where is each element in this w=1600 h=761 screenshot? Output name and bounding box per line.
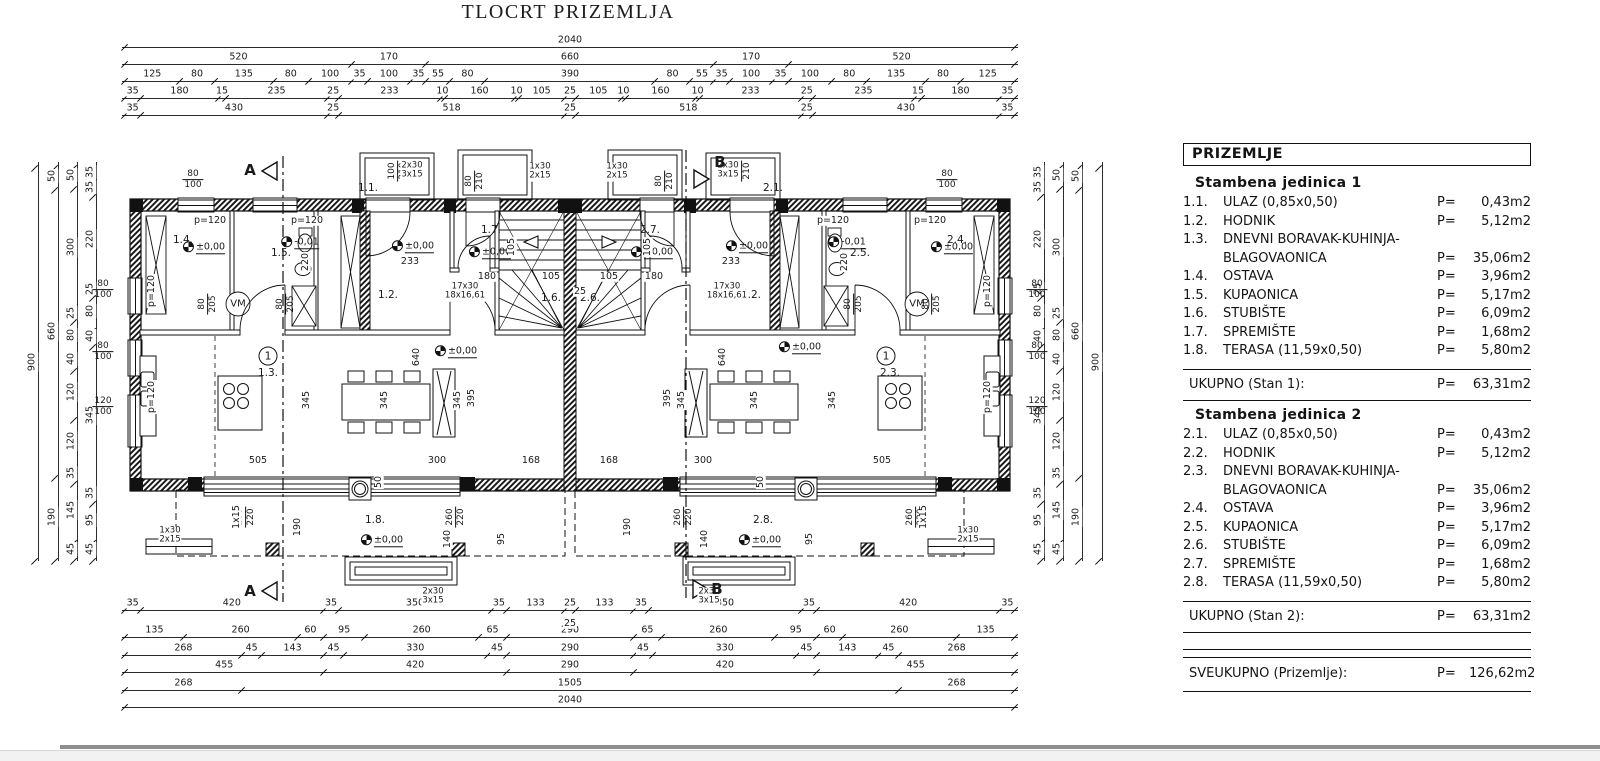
p-label: P= [1437,213,1469,232]
plan-dimension: 345 [828,390,838,410]
section-letter: B [714,154,725,171]
plan-dimension: 345 [750,390,760,410]
p-label: P= [1437,608,1469,627]
dimension-line [122,637,1018,638]
plan-dimension: p=120 [147,380,157,414]
plan-dimension: 1x15 [232,504,242,530]
floor-plan-area: 2040520170660170520125801358010035100355… [0,0,1170,760]
plan-dimension: 233 [400,257,420,267]
room-number: 2.2. [1183,445,1223,464]
elevation-icon [779,341,790,352]
legend-separator [1183,649,1531,650]
stair-note: 2x30 3x15 [400,162,423,181]
dimension-value: 518 [442,104,462,114]
legend-header-text: PRIZEMLJE [1192,146,1283,162]
dimension-value: 518 [678,104,698,114]
room-name: STUBIŠTE [1223,537,1437,556]
dimension-value: 35 [802,599,816,609]
dimension-value: 455 [214,661,234,671]
plan-dimension: 1x15 [919,504,929,530]
p-label: P= [1437,445,1469,464]
dimension-line [122,707,1018,708]
area-value [1469,231,1531,250]
elevation-value: ±0,00 [448,345,477,358]
dimension-value: 80 [284,70,298,80]
dimension-value: 260 [231,626,251,636]
dimension-value: 900 [1090,351,1102,371]
dimension-value: 390 [560,70,580,80]
room-number: 2.1. [1183,426,1223,445]
p-label: P= [1437,556,1469,575]
dimension-value: 95 [337,626,351,636]
dimension-value: 100 [379,70,399,80]
dimension-value: 50 [1051,168,1063,182]
area-value: 5,80m2 [1469,342,1531,361]
opening-size-label: 260220 [445,506,467,527]
dimension-value: 35 [126,87,140,97]
plan-dimension: 640 [718,347,728,367]
legend-body: Stambena jedinica 11.1.ULAZ (0,85x0,50)P… [1183,175,1531,692]
dimension-value: 55 [431,70,445,80]
room-number: 2.6. [1183,537,1223,556]
dimension-value: 45 [636,644,650,654]
opening-size-label: 80205 [843,293,865,314]
legend-unit-title: Stambena jedinica 1 [1183,175,1531,191]
room-number: 1.6. [1183,305,1223,324]
dimension-value: 35 [1000,87,1014,97]
room-name: KUPAONICA [1223,287,1437,306]
elevation-mark: ±0,00 [469,246,511,257]
dimension-value: 125 [142,70,162,80]
elevation-icon [828,236,839,247]
opening-size-label: 80210 [654,170,676,191]
legend-row: 2.5.KUPAONICAP=5,17m2 [1183,519,1531,538]
dimension-value: 35 [773,70,787,80]
dimension-value: 25 [326,104,340,114]
dimension-value: 300 [1051,237,1063,257]
legend-row: 2.6.STUBIŠTEP=6,09m2 [1183,537,1531,556]
p-label: P= [1437,250,1469,269]
dimension-value: 260 [889,626,909,636]
dimension-line [38,162,39,561]
p-label: P= [1437,305,1469,324]
page-bottom-rule [60,745,1600,749]
elevation-value: ±0,00 [752,534,781,547]
dimension-line [122,690,1018,691]
legend-total: UKUPNO (Stan 2):P=63,31m2 [1183,601,1531,634]
room-name: TERASA (11,59x0,50) [1223,574,1437,593]
plan-dimension: p=120 [913,216,947,226]
room-number: 2.3. [1183,463,1223,482]
p-label: P= [1437,537,1469,556]
dimension-value: 45 [65,542,77,556]
dimension-value: 80 [65,328,77,342]
elevation-mark: ±0,00 [361,534,403,545]
dimension-value: 233 [740,87,760,97]
dimension-value: 190 [1070,506,1082,526]
dimension-value: 60 [303,626,317,636]
dimension-value: 60 [823,626,837,636]
room-number: 2.3. [880,368,900,380]
dimension-value: 35 [634,599,648,609]
dimension-value: 80 [936,70,950,80]
plan-dimension: 25 [573,287,587,297]
plan-dimension: 505 [872,456,892,466]
section-letter: A [244,162,256,179]
legend-panel: PRIZEMLJE Stambena jedinica 11.1.ULAZ (0… [1183,143,1531,692]
elevation-value: ±0,00 [374,534,403,547]
room-name: HODNIK [1223,213,1437,232]
p-label: P= [1437,482,1469,501]
stair-note: 1x30 2x15 [605,163,628,182]
elevation-mark: ±0,00 [392,240,434,251]
dimension-line [1063,162,1064,561]
legend-row: 1.8.TERASA (11,59x0,50)P=5,80m2 [1183,342,1531,361]
dimension-value: 145 [65,500,77,520]
elevation-icon [281,236,292,247]
plan-dimension: 190 [623,517,633,537]
window-bottom-strip [0,750,1600,761]
legend-row: 2.3.DNEVNI BORAVAK-KUHINJA- [1183,463,1531,482]
dimension-value: 35 [324,599,338,609]
dimension-value: 35 [1032,486,1044,500]
legend-row: 1.1.ULAZ (0,85x0,50)P=0,43m2 [1183,194,1531,213]
area-value: 6,09m2 [1469,305,1531,324]
plan-dimension: p=120 [193,216,227,226]
opening-size-label: 80100 [936,169,957,191]
opening-size-label: 80100 [92,341,113,363]
dimension-line [77,162,78,561]
opening-size-label: 80205 [197,293,219,314]
area-value: 1,68m2 [1469,556,1531,575]
plan-dimension: 50 [374,475,384,489]
dimension-value: 80 [1032,304,1044,318]
dimension-value: 268 [173,679,193,689]
area-value: 0,43m2 [1469,426,1531,445]
dimension-line [122,610,1018,611]
dimension-value: 25 [563,104,577,114]
dimension-value: 45 [84,542,96,556]
dimension-value: 95 [84,513,96,527]
elevation-icon [931,241,942,252]
plan-dimension: 180 [644,272,664,282]
room-name: ULAZ (0,85x0,50) [1223,426,1437,445]
stair-note: 1x30 2x15 [158,527,181,546]
dimension-value: 160 [650,87,670,97]
dimension-value: 25 [563,87,577,97]
legend-row: 2.8.TERASA (11,59x0,50)P=5,80m2 [1183,574,1531,593]
dimension-value: 120 [1051,382,1063,402]
elevation-mark: -0,01 [828,236,866,247]
room-name: SPREMIŠTE [1223,556,1437,575]
dimension-value: 330 [715,644,735,654]
area-value: 1,68m2 [1469,324,1531,343]
dimension-value: 300 [65,237,77,257]
dimension-value: 145 [1051,500,1063,520]
room-number: 2.7. [1183,556,1223,575]
stair-note: 1x30 2x15 [956,527,979,546]
room-number: 1.1. [1183,194,1223,213]
room-number: 2.1. [763,183,783,195]
elevation-value: ±0,00 [739,240,768,253]
p-label: P= [1437,665,1469,684]
plan-dimension: 105 [599,272,619,282]
room-name: DNEVNI BORAVAK-KUHINJA- [1223,231,1437,250]
dimension-value: 120 [65,382,77,402]
room-name: BLAGOVAONICA [1223,250,1437,269]
dimension-value: 133 [594,599,614,609]
p-label: P= [1437,376,1469,395]
room-number: 1.3. [258,368,278,380]
legend-row: 1.5.KUPAONICAP=5,17m2 [1183,287,1531,306]
dimension-value: 65 [640,626,654,636]
dimension-value: 80 [1051,328,1063,342]
dimension-value: 135 [975,626,995,636]
area-value: 3,96m2 [1469,500,1531,519]
elevation-icon [726,240,737,251]
room-name: SVEUKUPNO (Prizemlje): [1189,665,1437,684]
room-name: ULAZ (0,85x0,50) [1223,194,1437,213]
room-number: 1.5. [271,248,291,260]
dimension-value: 25 [326,87,340,97]
legend-row: 2.1.ULAZ (0,85x0,50)P=0,43m2 [1183,426,1531,445]
dimension-value: 220 [84,229,96,249]
stair-note: 2x30 3x15 [421,588,444,607]
legend-grand-total: SVEUKUPNO (Prizemlje):P=126,62m2 [1183,657,1531,692]
dimension-value: 25 [800,104,814,114]
plan-dimension: 220 [840,252,850,272]
p-label [1437,463,1469,482]
plan-dimension: 395 [663,388,673,408]
dimension-value: 120 [65,431,77,451]
elevation-icon [435,345,446,356]
p-label: P= [1437,426,1469,445]
plan-dimension: 95 [805,532,815,546]
p-label: P= [1437,268,1469,287]
elevation-value: -0,01 [841,236,866,249]
dimension-value: 80 [842,70,856,80]
area-value: 6,09m2 [1469,537,1531,556]
room-name: HODNIK [1223,445,1437,464]
plan-dimension: p=120 [983,380,993,414]
opening-size-label: 120100 [1026,396,1047,418]
room-name: DNEVNI BORAVAK-KUHINJA- [1223,463,1437,482]
plan-dimension: 95 [497,532,507,546]
opening-size-label: 80100 [1026,279,1047,301]
room-number: 2.8. [753,515,773,527]
plan-dimension: 105 [507,237,517,257]
plan-dimension: VM [230,299,245,310]
elevation-value: ±0,00 [405,240,434,253]
dimension-line [58,162,59,561]
dimension-value: 25 [563,599,577,609]
dimension-value: 35 [1051,466,1063,480]
room-number: 1.2. [378,290,398,302]
plan-dimension: p=120 [290,216,324,226]
dimension-value: 133 [525,599,545,609]
legend-row: UKUPNO (Stan 1):P=63,31m2 [1183,376,1531,395]
plan-dimension: 345 [453,390,463,410]
dimension-value: 105 [532,87,552,97]
elevation-mark: ±0,00 [931,241,973,252]
room-number: 1.2. [1183,213,1223,232]
dimension-value: 65 [486,626,500,636]
dimension-value: 268 [173,644,193,654]
stair-note: 1x30 2x15 [528,163,551,182]
room-number: 1.7. [1183,324,1223,343]
opening-size-label: 80100 [1026,341,1047,363]
dimension-line [122,115,1018,116]
dimension-line [122,47,1018,48]
dimension-value: 100 [741,70,761,80]
dimension-value: 660 [1070,321,1082,341]
elevation-icon [469,246,480,257]
dimension-value: 45 [881,644,895,654]
elevation-mark: -0,01 [281,236,319,247]
legend-row: 1.4.OSTAVAP=3,96m2 [1183,268,1531,287]
dimension-value: 268 [946,679,966,689]
plan-dimension: 190 [293,517,303,537]
p-label: P= [1437,574,1469,593]
room-number: 2.7. [640,225,660,237]
room-number: 1.8. [365,515,385,527]
dimension-value: 35 [84,165,96,179]
dimension-value: 135 [886,70,906,80]
dimension-line [122,655,1018,656]
dimension-value: 660 [46,321,58,341]
plan-dimension: 25 [563,619,577,629]
dimension-value: 45 [245,644,259,654]
legend-row: 2.7.SPREMIŠTEP=1,68m2 [1183,556,1531,575]
area-value: 5,12m2 [1469,213,1531,232]
dimension-value: 2040 [557,36,583,46]
dimension-value: 55 [695,70,709,80]
p-label: P= [1437,519,1469,538]
dimension-value: 1505 [557,679,583,689]
dimension-value: 233 [379,87,399,97]
dimension-value: 35 [715,70,729,80]
legend-row: 1.2.HODNIKP=5,12m2 [1183,213,1531,232]
dimension-value: 80 [460,70,474,80]
dimension-value: 95 [789,626,803,636]
dimension-value: 35 [1032,180,1044,194]
dimension-value: 95 [1032,513,1044,527]
party-wall [564,199,576,491]
plan-dimension: 168 [599,456,619,466]
legend-row: BLAGOVAONICAP=35,06m2 [1183,250,1531,269]
plan-dimension: 345 [380,390,390,410]
dimension-line [1082,162,1083,561]
legend-total: UKUPNO (Stan 1):P=63,31m2 [1183,369,1531,402]
dimension-value: 235 [266,87,286,97]
area-value: 5,80m2 [1469,574,1531,593]
plan-dimension: 105 [541,272,561,282]
dimension-value: 455 [906,661,926,671]
dimension-value: 45 [799,644,813,654]
room-number: 1.8. [1183,342,1223,361]
room-number: 2.5. [850,248,870,260]
area-value: 3,96m2 [1469,268,1531,287]
stair-note: 17x30 18x16,61 [444,283,486,302]
elevation-icon [739,534,750,545]
elevation-mark: ±0,00 [435,345,477,356]
dimension-value: 35 [1032,165,1044,179]
plan-dimension: p=120 [816,216,850,226]
dimension-value: 170 [379,53,399,63]
room-number: 1.4. [1183,268,1223,287]
room-name: OSTAVA [1223,500,1437,519]
room-name: SPREMIŠTE [1223,324,1437,343]
elevation-mark: ±0,00 [779,341,821,352]
room-number: 1.1. [358,183,378,195]
dimension-line [1102,162,1103,561]
dimension-value: 660 [560,53,580,63]
room-name: KUPAONICA [1223,519,1437,538]
dimension-value: 420 [715,661,735,671]
unit-number-bubble: 1 [877,347,896,366]
dimension-value: 35 [1000,599,1014,609]
legend-row: 1.7.SPREMIŠTEP=1,68m2 [1183,324,1531,343]
dimension-value: 420 [405,661,425,671]
dimension-value: 35 [84,486,96,500]
plan-dimension: 300 [693,456,713,466]
elevation-value: ±0,00 [792,341,821,354]
elevation-mark: ±0,00 [726,240,768,251]
dimension-value: 520 [228,53,248,63]
room-number: 2.4. [1183,500,1223,519]
dimension-value: 35 [126,104,140,114]
dimension-value: 35 [126,599,140,609]
dimension-value: 25 [800,87,814,97]
p-label: P= [1437,324,1469,343]
dimension-value: 50 [65,168,77,182]
stair-note: 17x30 18x16,61 [706,283,748,302]
dimension-value: 430 [224,104,244,114]
dimension-value: 900 [26,351,38,371]
dimension-value: 143 [837,644,857,654]
dimension-value: 45 [490,644,504,654]
dimension-value: 160 [469,87,489,97]
room-number: 1.6. [541,293,561,305]
dimension-value: 180 [950,87,970,97]
area-value: 126,62m2 [1469,665,1531,684]
area-value: 35,06m2 [1469,482,1531,501]
dimension-value: 100 [320,70,340,80]
dimension-value: 120 [1051,431,1063,451]
room-name: TERASA (11,59x0,50) [1223,342,1437,361]
opening-size-label: 80205 [921,293,943,314]
dimension-value: 100 [800,70,820,80]
dimension-value: 45 [1051,542,1063,556]
dimension-value: 50 [1070,169,1082,183]
legend-row: 2.2.HODNIKP=5,12m2 [1183,445,1531,464]
dimension-value: 235 [853,87,873,97]
dimension-value: 420 [898,599,918,609]
room-name: OSTAVA [1223,268,1437,287]
floorplan-page: { "title": "TLOCRT PRIZEMLJA", "legend":… [0,0,1600,760]
elevation-icon [361,534,372,545]
p-label: P= [1437,342,1469,361]
room-name: UKUPNO (Stan 1): [1189,376,1437,395]
dimension-value: 260 [412,626,432,636]
plan-dimension: 233 [721,257,741,267]
plan-dimension: 640 [412,347,422,367]
dimension-value: 180 [169,87,189,97]
dimension-value: 35 [492,599,506,609]
plan-dimension: 50 [756,475,766,489]
elevation-value: -0,01 [294,236,319,249]
p-label [1437,231,1469,250]
